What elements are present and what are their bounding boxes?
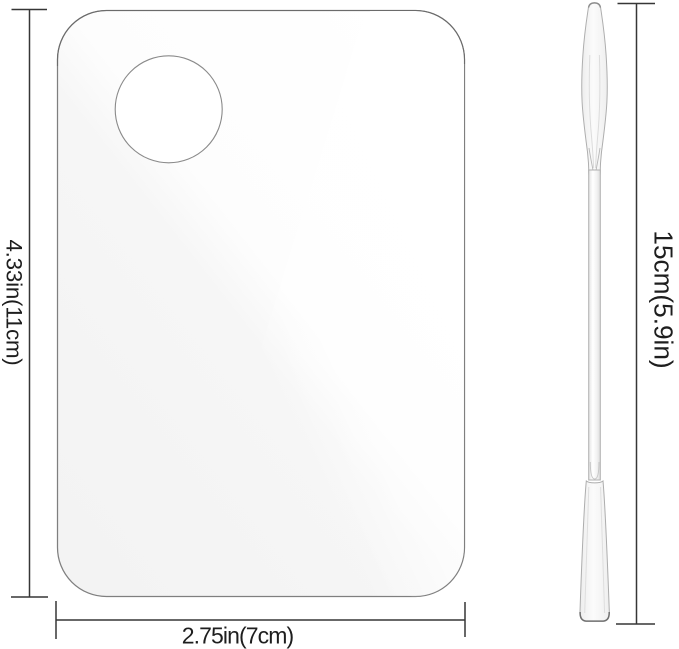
svg-text:15cm(5.9in): 15cm(5.9in) bbox=[649, 230, 679, 368]
svg-text:4.33in(11cm): 4.33in(11cm) bbox=[2, 239, 27, 365]
svg-text:2.75in(7cm): 2.75in(7cm) bbox=[182, 623, 294, 649]
